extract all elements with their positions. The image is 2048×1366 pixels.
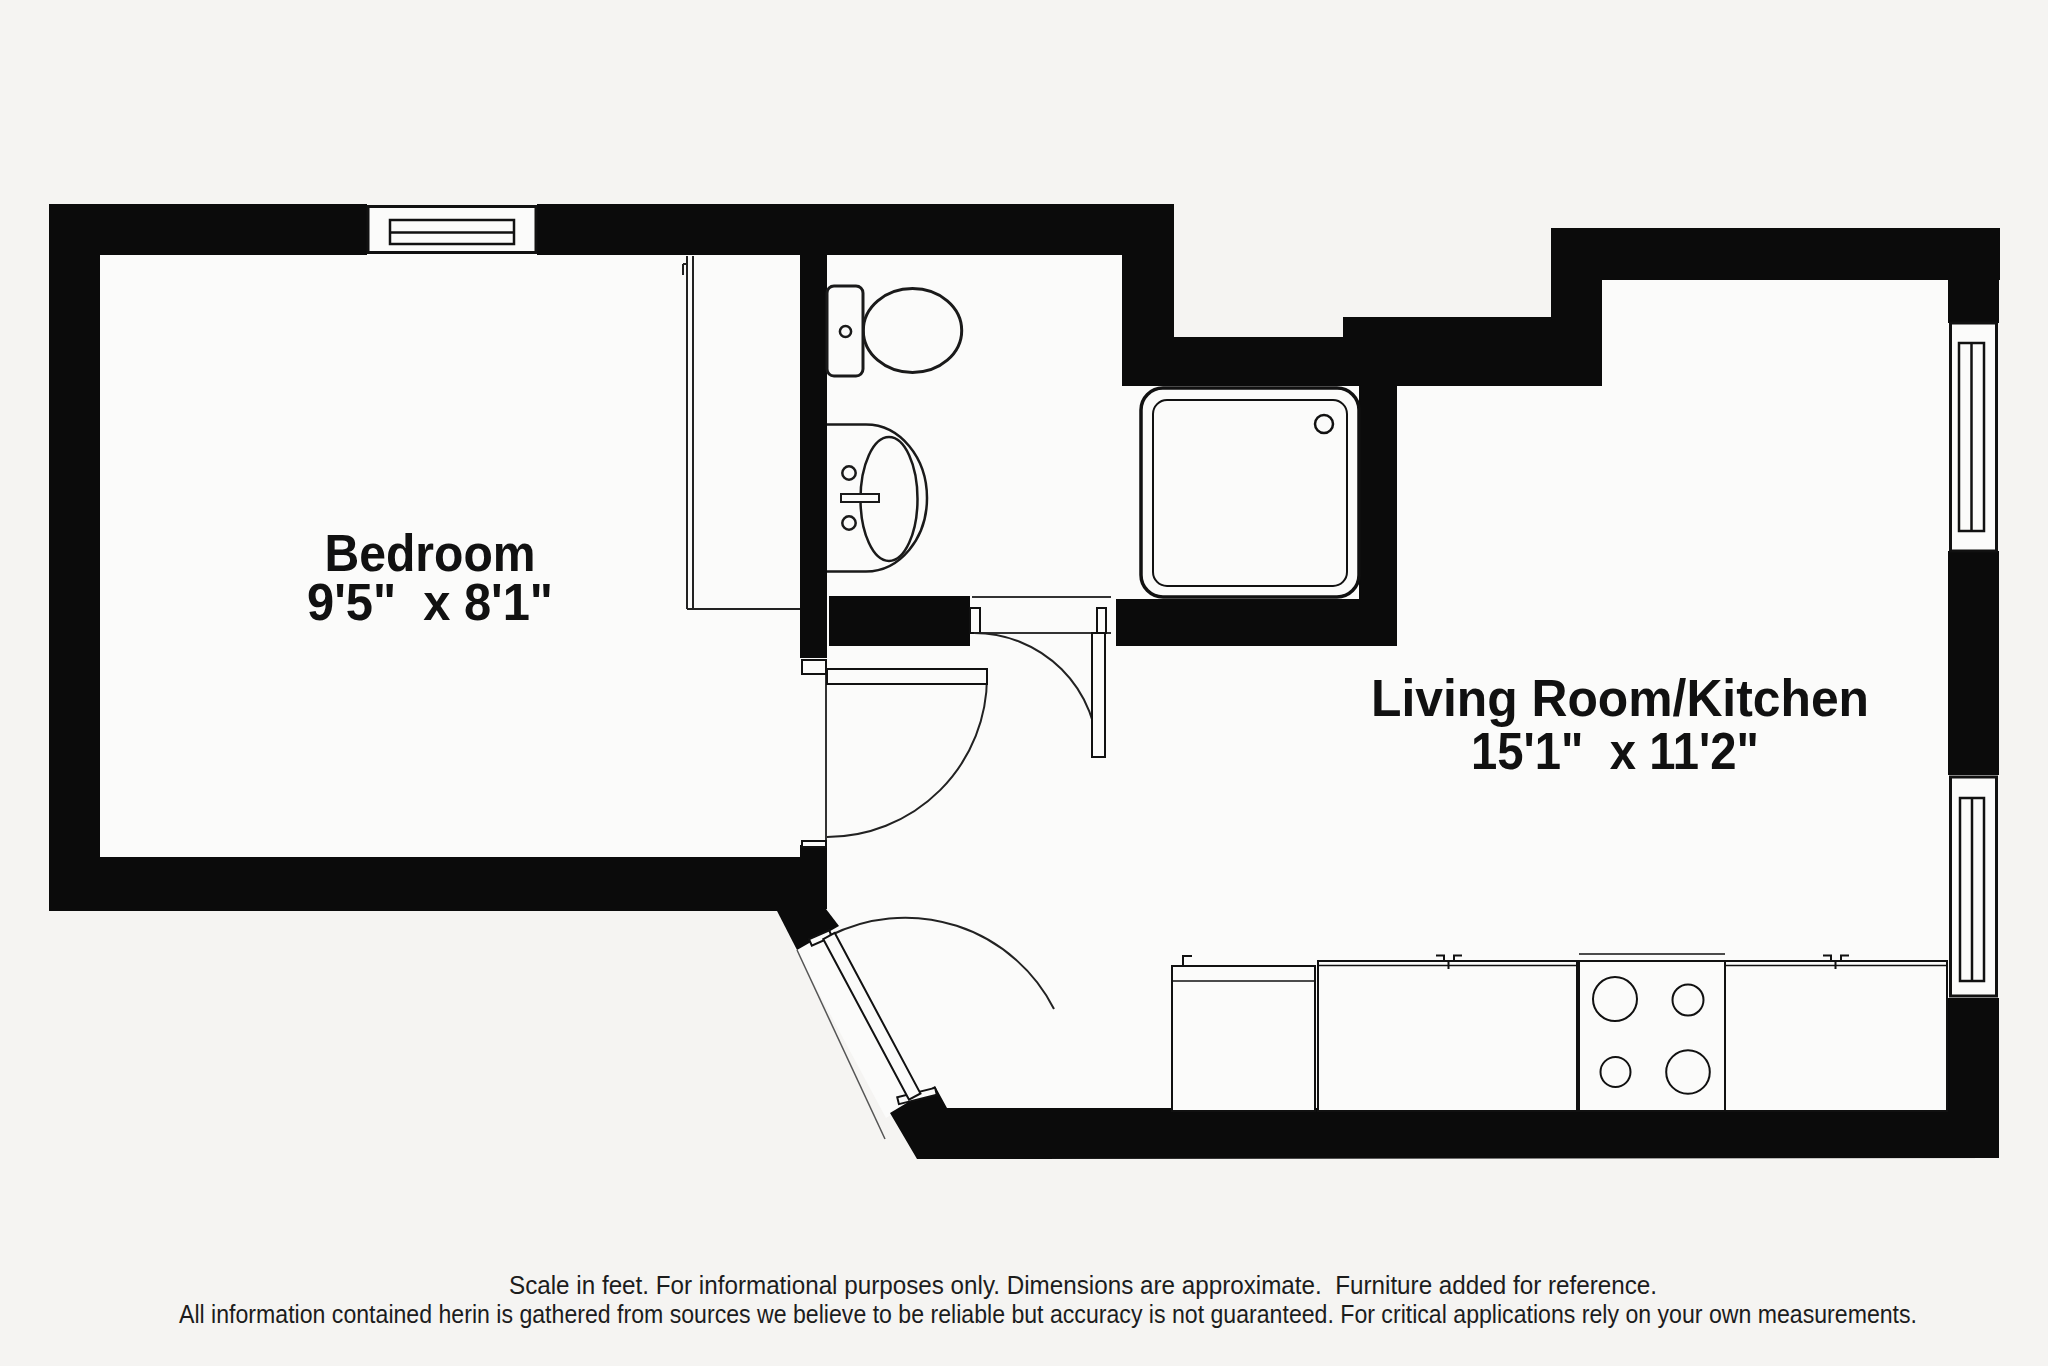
svg-text:Living Room/Kitchen: Living Room/Kitchen: [1371, 669, 1869, 727]
svg-text:Scale in feet. For information: Scale in feet. For informational purpose…: [509, 1270, 1657, 1300]
svg-text:9'5" x 8'1": 9'5" x 8'1": [307, 573, 553, 631]
svg-text:All information contained heri: All information contained herin is gathe…: [179, 1299, 1917, 1329]
svg-text:15'1" x 11'2": 15'1" x 11'2": [1471, 722, 1759, 780]
